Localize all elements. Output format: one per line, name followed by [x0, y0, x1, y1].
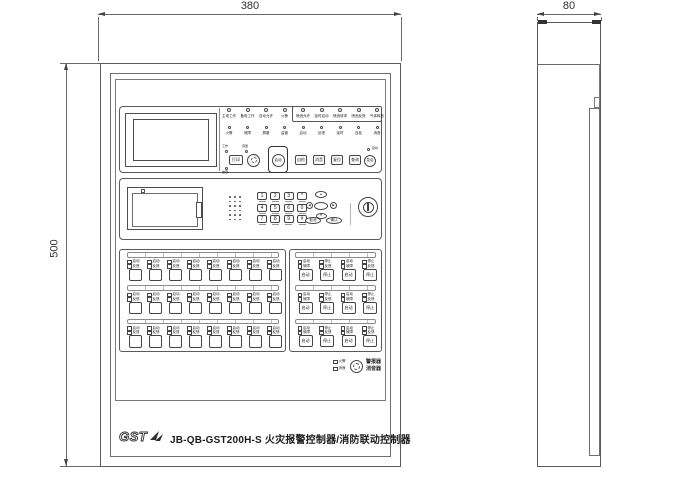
dim-arrow-right: [594, 12, 601, 16]
dim-depth-line: [537, 14, 601, 15]
indicator-label: 延时启动: [312, 115, 332, 119]
speaker-dot: [234, 201, 236, 203]
zone-control-button[interactable]: 启动: [299, 302, 313, 314]
print-button[interactable]: 打印: [229, 155, 243, 165]
dim-ext-line: [601, 17, 602, 21]
indicator-label: 喷洒反馈: [349, 115, 369, 119]
indicator-led: [246, 108, 250, 112]
zone-led-line: 反馈: [167, 264, 180, 269]
dim-ext-line: [60, 466, 100, 467]
indicator-led: [246, 126, 249, 129]
dim-width-line: [98, 14, 401, 15]
emergency-start-button[interactable]: 急启: [364, 155, 376, 167]
nav-up-button[interactable]: ▲: [315, 191, 327, 198]
speaker-grille: [228, 195, 242, 221]
zone-control-button[interactable]: 启动: [299, 269, 313, 281]
cluster-right-labels: 警报器 消音器: [366, 359, 381, 372]
side-door-edge: [599, 64, 600, 100]
dim-arrow-left: [537, 12, 544, 16]
zone-button[interactable]: [149, 335, 162, 348]
zone-button[interactable]: [209, 302, 222, 315]
mute-device-label: 消音器: [366, 366, 381, 373]
indicator-label: 备电工作: [238, 115, 258, 119]
indicator-label: 火警: [219, 132, 239, 136]
keypad-key-4[interactable]: 4: [257, 204, 267, 212]
zone-control-button[interactable]: 启动: [299, 335, 313, 347]
speaker-dot: [234, 210, 236, 212]
side-mount-mark: [538, 20, 547, 24]
keypad-key-sublabel: [299, 201, 306, 202]
keypad-key-sublabel: [299, 224, 306, 225]
indicator-led: [338, 108, 342, 112]
nav-left-button[interactable]: ◀: [306, 202, 313, 209]
model-title: JB-QB-GST200H-S 火灾报警控制器/消防联动控制器: [170, 431, 411, 446]
dim-ext-line: [60, 63, 100, 64]
speaker-dot: [239, 201, 241, 203]
zone-led-line: 反馈: [319, 264, 332, 269]
zone-button[interactable]: [129, 302, 142, 315]
indicator-label: 故障: [238, 132, 258, 136]
side-door-profile: [589, 108, 600, 456]
panel-seam: [350, 203, 351, 225]
indicator-led: [357, 108, 361, 112]
indicator-label: 气体释放: [367, 115, 387, 119]
nav-right-button[interactable]: ▶: [330, 202, 337, 209]
dim-arrow-down: [64, 459, 68, 466]
protected-start-button[interactable]: 启动: [272, 154, 285, 167]
cluster-fire-led-line: 火警: [333, 360, 346, 365]
indicator-label: 自检: [349, 132, 369, 136]
zone-button[interactable]: [189, 269, 202, 282]
mute-button[interactable]: 消音: [313, 155, 325, 165]
indicator-label: 主电工作: [219, 115, 239, 119]
keypad-key-sublabel: [285, 213, 292, 214]
zone-led-line: 故障: [298, 264, 311, 269]
keypad-key-sublabel: [299, 213, 306, 214]
dim-depth-label: 80: [558, 1, 580, 12]
zone-led-line: 反馈: [267, 264, 280, 269]
indicator-led: [265, 126, 268, 129]
zone-label-strip[interactable]: [127, 319, 279, 325]
indicator-led: [228, 126, 231, 129]
indicator-led: [301, 108, 305, 112]
zone-control-button[interactable]: 停止: [320, 302, 334, 314]
zone-button[interactable]: [209, 269, 222, 282]
keypad-key-sublabel: [259, 201, 266, 202]
zone-panel-right-grid: 启动故障启动停止反馈停止启动故障启动停止反馈停止启动故障启动停止反馈停止启动故障…: [289, 249, 382, 352]
indicator-led: [302, 126, 305, 129]
print-working-led: [225, 150, 228, 153]
zone-button[interactable]: [169, 269, 182, 282]
printer-hinge: [141, 189, 145, 193]
zone-button[interactable]: [269, 302, 282, 315]
indicator-led: [376, 126, 379, 129]
zone-control-button[interactable]: 停止: [363, 269, 377, 281]
led-square: [333, 367, 338, 372]
indicator-label: 反馈: [312, 132, 332, 136]
speaker-dot: [234, 219, 236, 221]
speaker-dot: [229, 201, 231, 203]
indicator-label: 延时: [330, 132, 350, 136]
selfcheck-button[interactable]: 自检: [295, 155, 307, 165]
keypad-key-sublabel: [259, 224, 266, 225]
print-led-label: 工作: [222, 145, 228, 148]
zone-button[interactable]: [209, 335, 222, 348]
indicator-row-2: 火警故障屏蔽监管启动反馈延时自检消音: [224, 123, 382, 140]
indicator-row-1: 主电工作备电工作自动允许火警喷洒允许延时启动喷洒请求喷洒反馈气体释放: [224, 106, 382, 123]
zone-label-strip[interactable]: [295, 285, 376, 291]
dim-ext-line: [98, 17, 99, 61]
buzzer-grille-icon: [353, 363, 360, 370]
cancel-button[interactable]: 取消: [305, 217, 321, 224]
reset-button[interactable]: 复位: [331, 155, 343, 165]
zone-button[interactable]: [249, 335, 262, 348]
keypad-key-sublabel: [272, 224, 279, 225]
keypad-key-sublabel: [285, 201, 292, 202]
keypad-key-sublabel: [272, 201, 279, 202]
volume-led: [245, 150, 248, 153]
cluster-mute-led-line: 消音: [333, 367, 346, 372]
zone-button[interactable]: [229, 335, 242, 348]
zone-button[interactable]: [149, 269, 162, 282]
alarm-device-label: 警报器: [366, 359, 381, 366]
zone-button[interactable]: [269, 335, 282, 348]
indicator-led: [339, 126, 342, 129]
speaker-dot: [239, 219, 241, 221]
volume-knob-label: 音量: [242, 145, 248, 148]
keypad-key-5[interactable]: 5: [270, 204, 280, 212]
dim-width-label: 380: [235, 1, 265, 12]
speaker-dot: [239, 210, 241, 212]
indicator-label: 监管: [275, 132, 295, 136]
zone-led-line: 故障: [341, 264, 354, 269]
emergency-led: [367, 148, 370, 151]
speaker-dot: [239, 205, 241, 207]
zone-led-line: 反馈: [147, 264, 160, 269]
zone-control-button[interactable]: 启动: [342, 269, 356, 281]
keypad-key-3[interactable]: 3: [284, 192, 294, 200]
indicator-label: 自动允许: [256, 115, 276, 119]
speaker-dot: [234, 196, 236, 198]
zone-button[interactable]: [229, 269, 242, 282]
zone-label-strip[interactable]: [295, 319, 376, 325]
keypad-key-sublabel: [285, 224, 292, 225]
zone-button[interactable]: [169, 302, 182, 315]
gst-logo: GST: [119, 430, 147, 443]
zone-button[interactable]: [229, 302, 242, 315]
indicator-label: 火警: [275, 115, 295, 119]
zone-led-line: 反馈: [227, 264, 240, 269]
zone-label-strip[interactable]: [127, 252, 279, 258]
keypad-key-6[interactable]: 6: [284, 204, 294, 212]
numeric-keypad: 123*4560789#: [255, 191, 310, 227]
technical-drawing-canvas: 380 80 500 主电工作备电工作自动允许火警喷洒允许延时启动喷洒请求喷洒反…: [0, 0, 680, 484]
indicator-led: [264, 108, 268, 112]
indicator-led: [320, 108, 324, 112]
keypad-key-2[interactable]: 2: [270, 192, 280, 200]
lcd-screen: [133, 119, 209, 161]
indicator-label: 启动: [293, 132, 313, 136]
zone-control-button[interactable]: 停止: [363, 335, 377, 347]
print-led-label2: 故障: [222, 171, 228, 174]
indicator-led: [227, 108, 231, 112]
dim-arrow-right: [394, 12, 401, 16]
query-button[interactable]: 查询: [349, 155, 361, 165]
dim-height-label: 500: [50, 234, 61, 264]
zone-label-strip[interactable]: [127, 285, 279, 291]
zone-button[interactable]: [189, 302, 202, 315]
speaker-dot: [234, 214, 236, 216]
keypad-key-*[interactable]: *: [297, 192, 307, 200]
keypad-key-9[interactable]: 9: [284, 215, 294, 223]
zone-led-line: 反馈: [247, 264, 260, 269]
confirm-button[interactable]: 确认: [326, 217, 342, 224]
keypad-key-sublabel: [272, 213, 279, 214]
indicator-led: [320, 126, 323, 129]
cluster-fire-label: 火警: [339, 360, 346, 364]
speaker-dot: [229, 210, 231, 212]
speaker-dot: [229, 205, 231, 207]
indicator-led: [283, 108, 287, 112]
speaker-dot: [239, 196, 241, 198]
speaker-dot: [229, 196, 231, 198]
keypad-key-8[interactable]: 8: [270, 215, 280, 223]
speaker-dot: [239, 214, 241, 216]
side-mount-mark: [592, 20, 601, 24]
zone-led-line: 反馈: [362, 264, 375, 269]
keypad-key-sublabel: [259, 213, 266, 214]
speaker-dot: [229, 219, 231, 221]
speaker-dot: [229, 214, 231, 216]
indicator-label: 喷洒请求: [330, 115, 350, 119]
volume-knob-knurl: [251, 157, 257, 163]
keypad-key-7[interactable]: 7: [257, 215, 267, 223]
zone-control-button[interactable]: 启动: [342, 302, 356, 314]
zone-button[interactable]: [189, 335, 202, 348]
logo-swoosh-icon: [150, 431, 163, 442]
indicator-label: 喷洒允许: [293, 115, 313, 119]
zone-button[interactable]: [249, 302, 262, 315]
zone-button[interactable]: [269, 269, 282, 282]
zone-button[interactable]: [149, 302, 162, 315]
zone-led-line: 反馈: [207, 264, 220, 269]
keyhole-icon: [367, 203, 369, 211]
zone-control-button[interactable]: 启动: [342, 335, 356, 347]
zone-panel-left-grid: 启动反馈启动反馈启动反馈启动反馈启动反馈启动反馈启动反馈启动反馈启动反馈启动反馈…: [119, 249, 286, 352]
zone-button[interactable]: [249, 269, 262, 282]
nav-center-button[interactable]: [314, 202, 328, 210]
dim-arrow-up: [64, 63, 68, 70]
dim-ext-line: [401, 17, 402, 61]
zone-control-button[interactable]: 停止: [320, 269, 334, 281]
zone-button[interactable]: [129, 269, 142, 282]
keypad-key-1[interactable]: 1: [257, 192, 267, 200]
zone-button[interactable]: [129, 335, 142, 348]
cluster-mute-label: 消音: [339, 367, 346, 371]
zone-led-line: 反馈: [127, 264, 140, 269]
led-square: [333, 360, 338, 365]
dim-height-line: [66, 63, 67, 466]
zone-label-strip[interactable]: [295, 252, 376, 258]
indicator-label: 消音: [367, 132, 387, 136]
emergency-led-label: 延时: [372, 147, 378, 150]
indicator-led: [357, 126, 360, 129]
dim-arrow-left: [98, 12, 105, 16]
zone-control-button[interactable]: 停止: [363, 302, 377, 314]
side-view-top-seam: [537, 64, 601, 65]
indicator-led: [375, 108, 379, 112]
indicator-led: [283, 126, 286, 129]
speaker-dot: [234, 205, 236, 207]
indicator-label: 屏蔽: [256, 132, 276, 136]
side-door-step: [594, 97, 600, 108]
zone-led-line: 反馈: [187, 264, 200, 269]
printer-door-inner: [132, 193, 198, 227]
zone-button[interactable]: [169, 335, 182, 348]
zone-control-button[interactable]: 停止: [320, 335, 334, 347]
printer-latch[interactable]: [196, 202, 202, 218]
